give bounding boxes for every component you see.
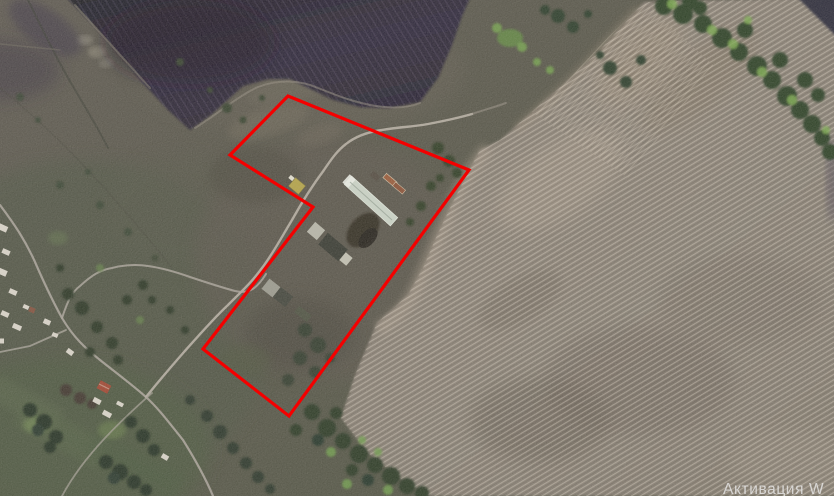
image-grain-overlay: [0, 0, 834, 496]
satellite-map-canvas[interactable]: Активация W: [0, 0, 834, 496]
windows-activation-watermark: Активация W: [723, 481, 824, 496]
satellite-imagery: Активация W: [0, 0, 834, 496]
